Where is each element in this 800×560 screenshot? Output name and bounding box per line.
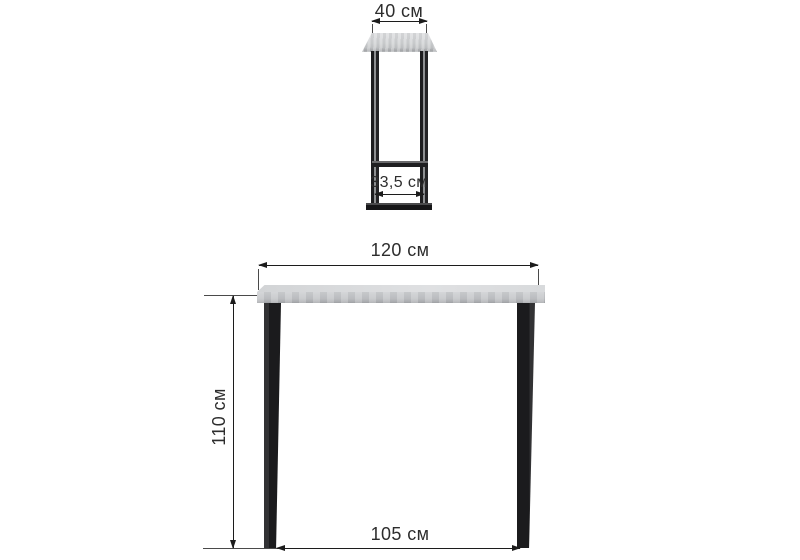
dim-label-width: 120 см — [340, 240, 460, 260]
extension-line — [203, 548, 277, 549]
tabletop-surface — [257, 285, 545, 292]
dim-label-depth: 33,5 см — [339, 173, 459, 193]
dim-label-leg-span: 105 см — [340, 524, 460, 544]
tabletop-edge — [257, 292, 545, 303]
side-base-bar — [366, 203, 432, 210]
dim-arrow-leg-span — [277, 548, 520, 549]
dimension-diagram: 40 см 33,5 см 120 см 110 см 105 см — [0, 0, 800, 560]
side-crossbar — [372, 161, 428, 167]
extension-line — [426, 24, 427, 34]
dim-arrow-width — [259, 265, 538, 266]
side-tabletop — [362, 33, 437, 52]
front-tabletop — [257, 285, 545, 303]
front-leg-left — [264, 303, 281, 548]
extension-line — [372, 24, 373, 34]
dim-label-height: 110 см — [209, 357, 229, 477]
dim-arrow-top-width — [372, 21, 427, 22]
dim-arrow-height — [233, 296, 234, 548]
front-leg-right — [517, 303, 535, 548]
dim-label-top-width: 40 см — [339, 1, 459, 21]
dim-arrow-depth — [375, 194, 424, 195]
